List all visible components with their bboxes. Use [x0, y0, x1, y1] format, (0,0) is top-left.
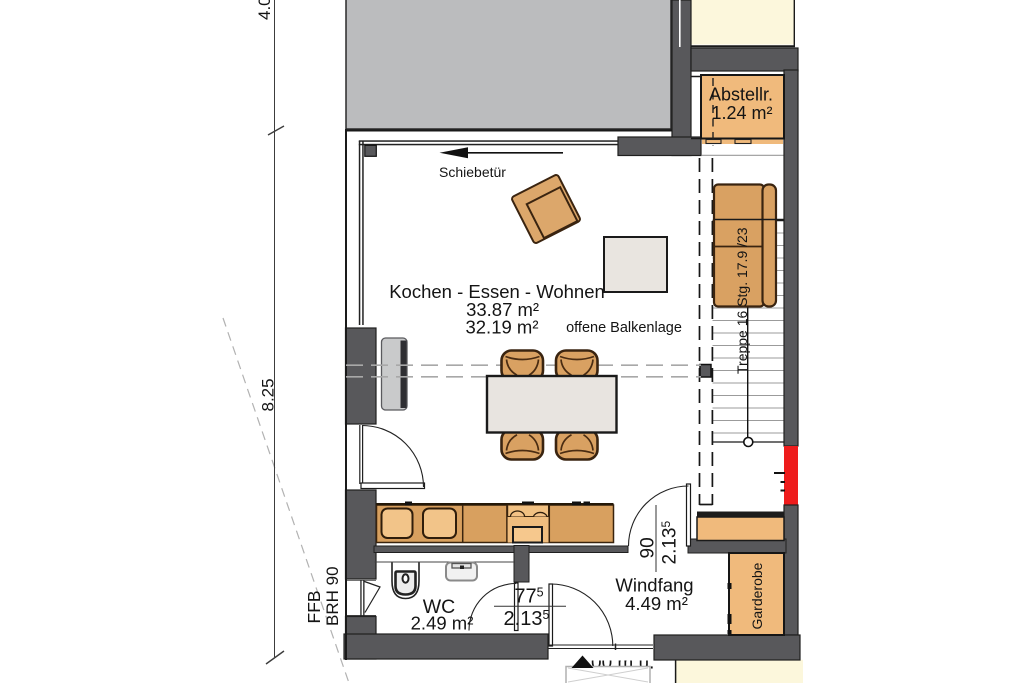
svg-text:90: 90 — [638, 537, 659, 558]
svg-text:4.0: 4.0 — [255, 0, 274, 20]
svg-text:32.19 m²: 32.19 m² — [465, 317, 538, 338]
svg-text:Treppe 16 Stg. 17.9 /23: Treppe 16 Stg. 17.9 /23 — [734, 227, 750, 374]
svg-text:BRH 90: BRH 90 — [323, 566, 342, 626]
svg-text:1.24 m²: 1.24 m² — [711, 103, 772, 123]
svg-text:Garderobe: Garderobe — [749, 562, 765, 629]
svg-text:2.135: 2.135 — [659, 521, 681, 565]
svg-text:Abstellr.: Abstellr. — [709, 85, 773, 105]
svg-text:2.49 m²: 2.49 m² — [411, 613, 474, 634]
svg-text:4.49 m²: 4.49 m² — [625, 593, 688, 614]
svg-text:offene Balkenlage: offene Balkenlage — [566, 320, 682, 336]
svg-text:FFB: FFB — [304, 590, 324, 623]
svg-text:775: 775 — [514, 586, 543, 608]
svg-text:Schiebetür: Schiebetür — [439, 164, 506, 180]
svg-text:8.25: 8.25 — [259, 378, 278, 411]
svg-text:2.135: 2.135 — [504, 608, 550, 630]
